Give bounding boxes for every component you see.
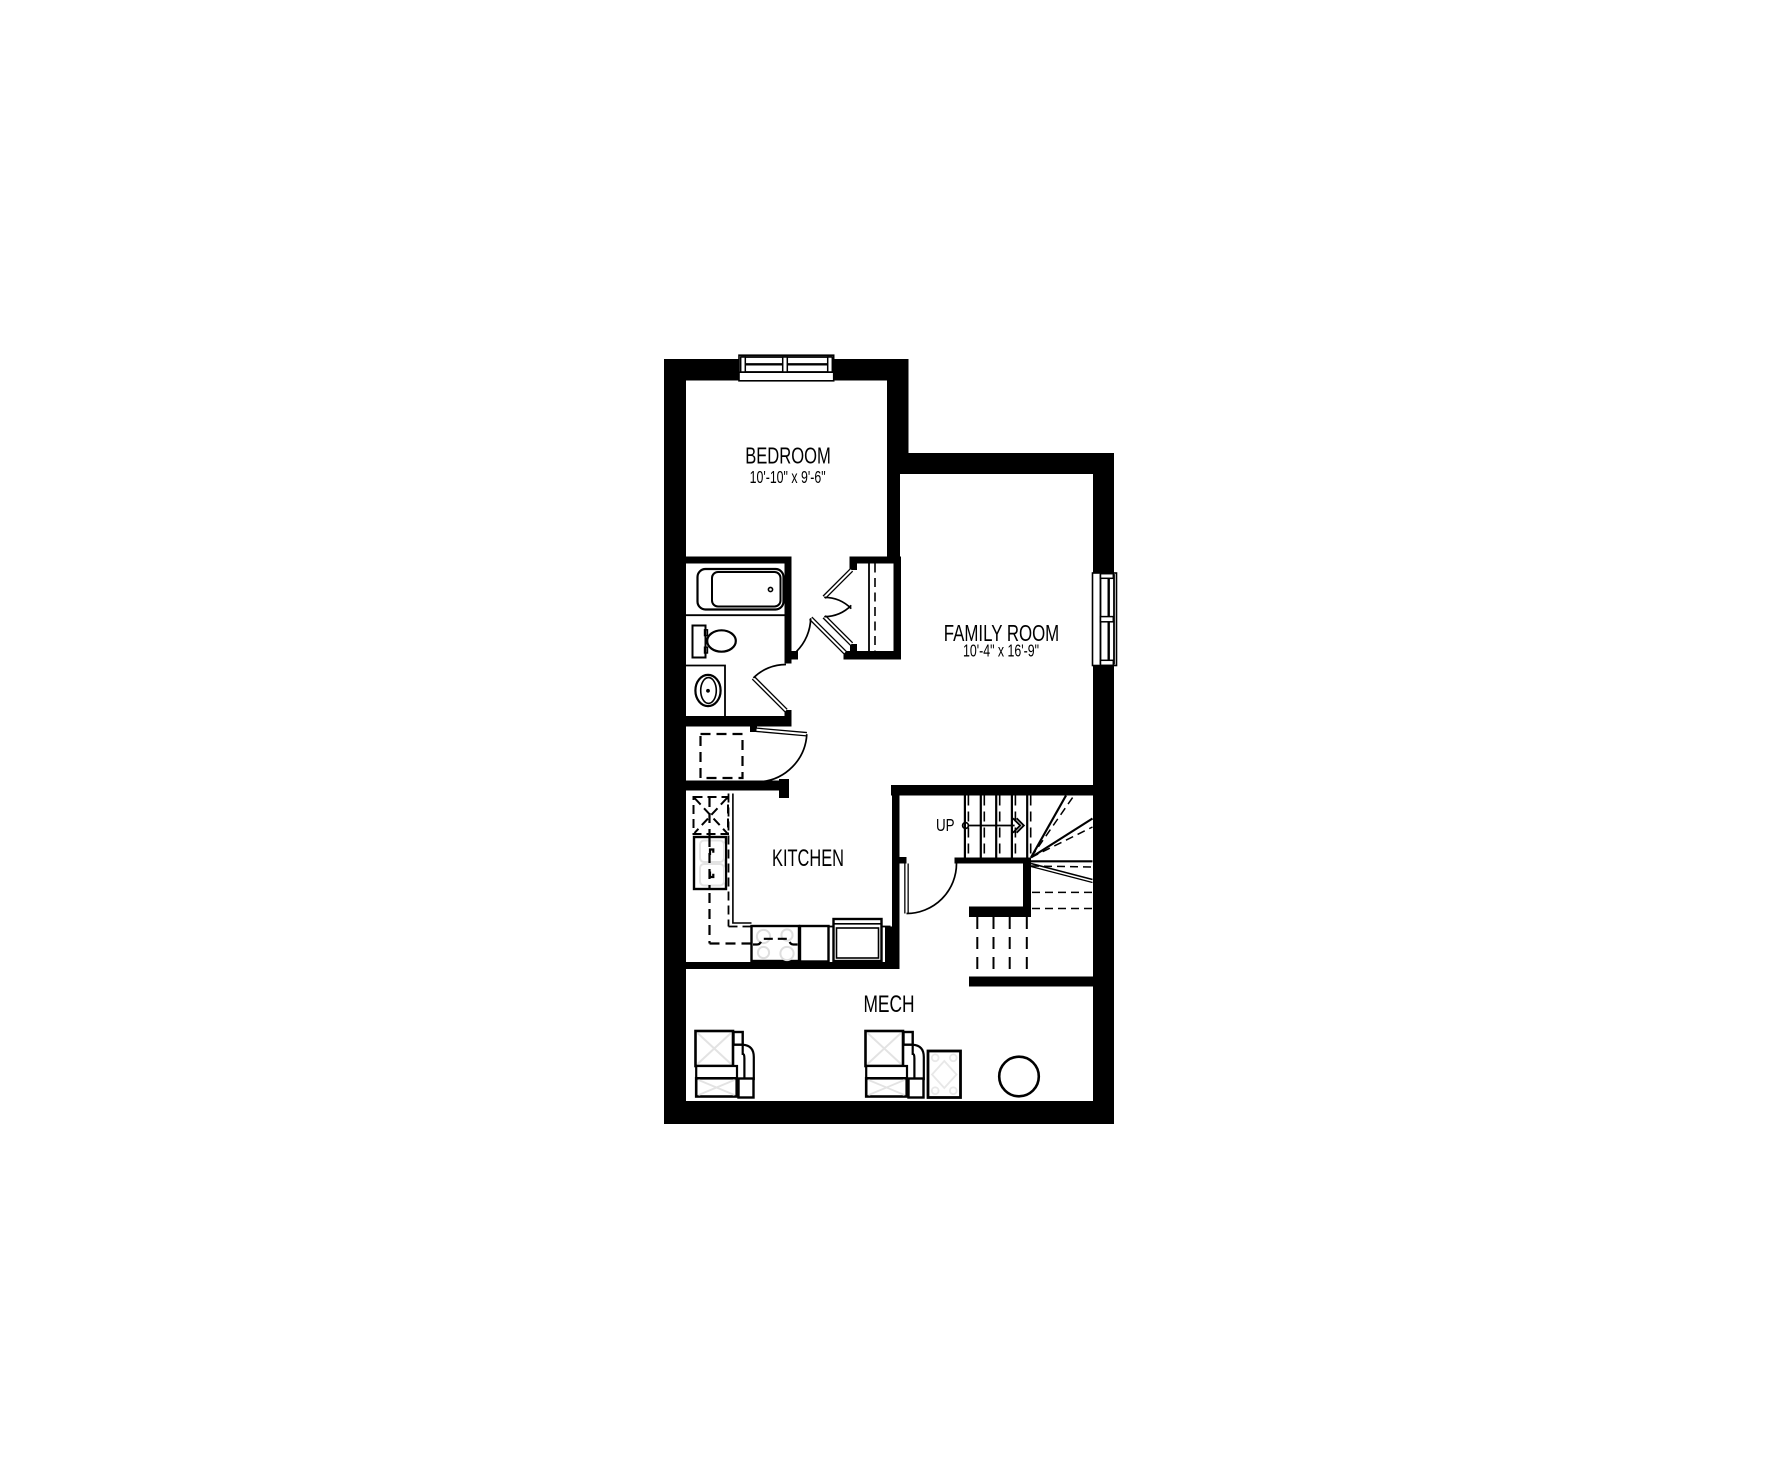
svg-text:KITCHEN: KITCHEN (772, 846, 844, 872)
svg-text:UP: UP (936, 815, 955, 835)
svg-text:BEDROOM: BEDROOM (745, 442, 831, 468)
svg-text:MECH: MECH (863, 991, 914, 1018)
svg-text:10'-4" x 16'-9": 10'-4" x 16'-9" (963, 641, 1039, 661)
svg-text:10'-10" x 9'-6": 10'-10" x 9'-6" (750, 467, 826, 487)
